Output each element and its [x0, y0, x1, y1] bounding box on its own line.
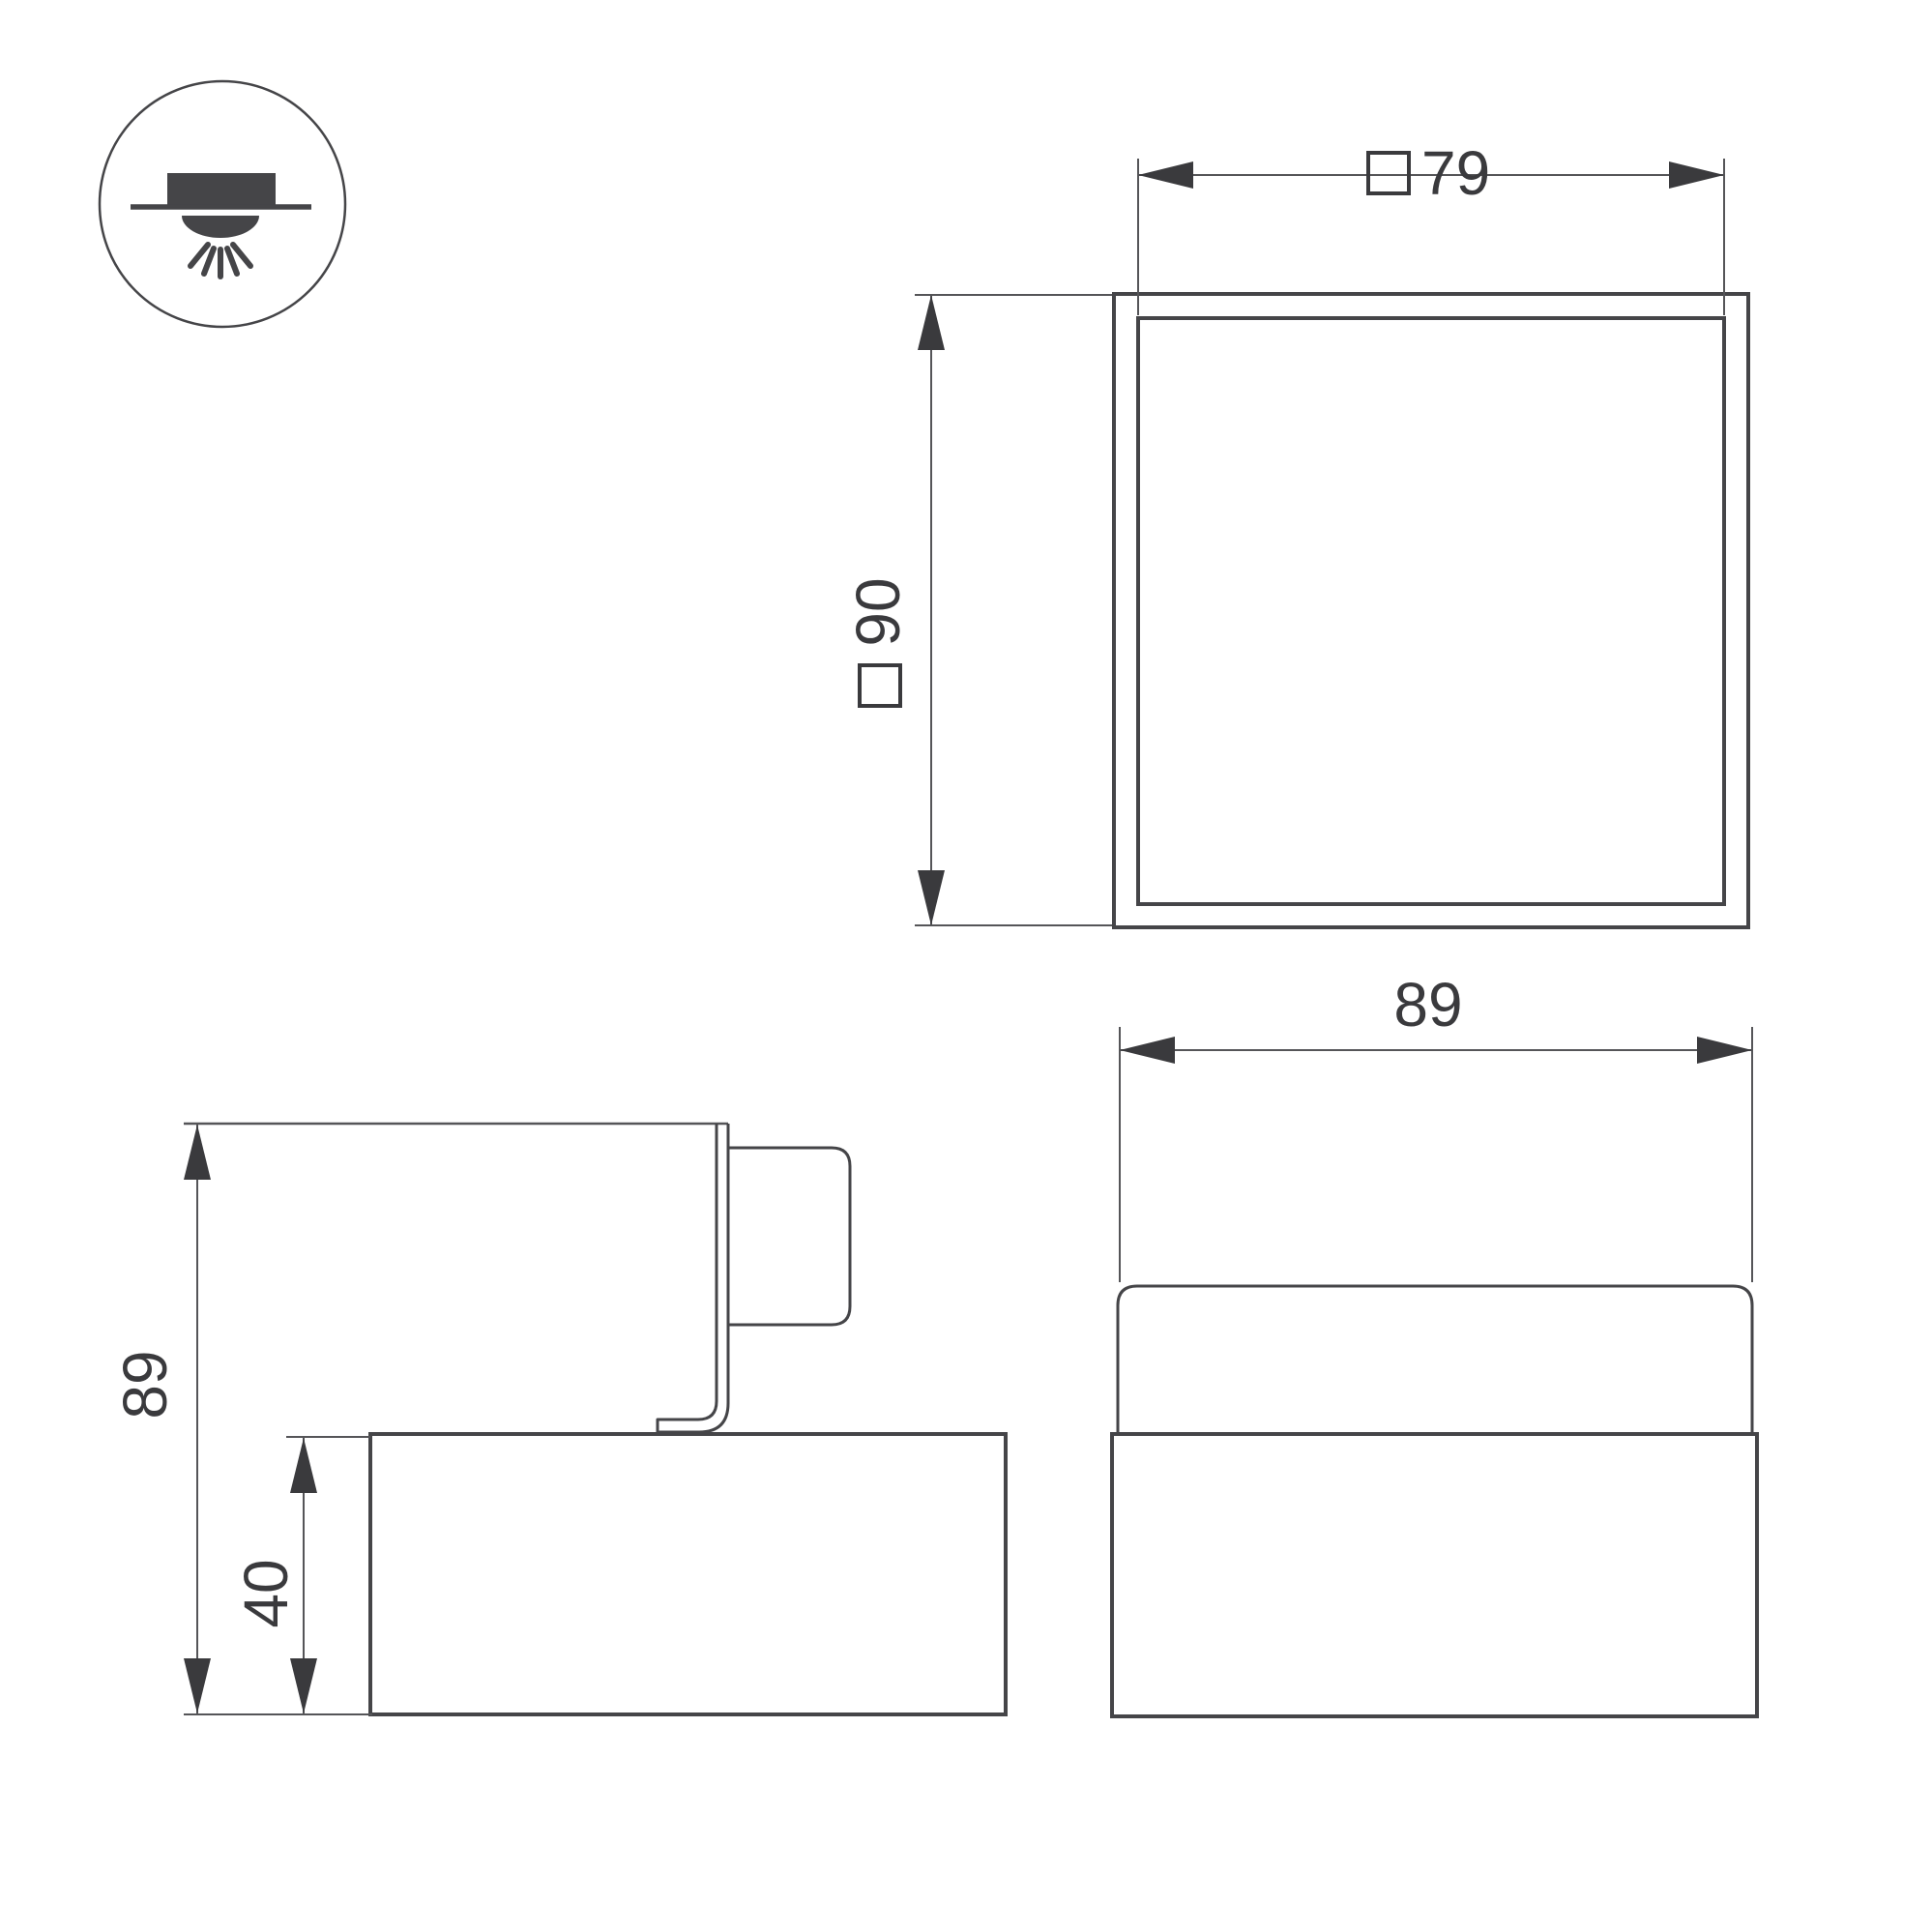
arrow-right-icon — [1697, 1037, 1752, 1064]
dimension-label-40: 40 — [231, 1559, 301, 1627]
fixture-housing-icon — [167, 173, 276, 206]
arrow-down-icon — [290, 1658, 317, 1713]
square-symbol-icon — [1368, 153, 1409, 193]
top-view: 79 90 — [843, 138, 1748, 927]
square-symbol-icon — [860, 665, 900, 706]
driver-box — [728, 1148, 850, 1325]
lamp-dome-icon — [182, 216, 259, 238]
light-rays-icon — [190, 245, 250, 277]
arrow-up-icon — [918, 295, 945, 350]
dimension-drawing: 79 90 89 — [0, 0, 1932, 1932]
arrow-down-icon — [918, 870, 945, 925]
arrow-left-icon — [1138, 161, 1193, 189]
dimension-40: 40 — [231, 1437, 370, 1713]
base-body-front — [1112, 1434, 1757, 1716]
dimension-label-90: 90 — [843, 577, 913, 646]
dimension-89-front: 89 — [1120, 970, 1752, 1282]
arrow-up-icon — [184, 1125, 211, 1180]
arrow-left-icon — [1120, 1037, 1175, 1064]
arrow-down-icon — [184, 1658, 211, 1713]
mount-type-icon — [100, 81, 345, 327]
front-view: 89 — [1112, 970, 1757, 1716]
arrow-right-icon — [1669, 161, 1724, 189]
dimension-79: 79 — [1138, 138, 1724, 315]
arrow-up-icon — [290, 1438, 317, 1493]
base-body-side — [370, 1434, 1006, 1714]
dimension-90: 90 — [843, 295, 1112, 925]
dimension-label-89-front: 89 — [1393, 970, 1462, 1039]
dimension-label-79: 79 — [1421, 138, 1490, 208]
dimension-label-89-side: 89 — [110, 1350, 180, 1419]
side-view: 89 40 — [110, 1124, 1006, 1714]
inner-square — [1138, 318, 1724, 904]
lamp-head-front — [1118, 1286, 1752, 1433]
outer-square — [1114, 294, 1748, 927]
drawing-canvas: 79 90 89 — [0, 0, 1932, 1932]
mounting-bracket — [658, 1124, 728, 1432]
